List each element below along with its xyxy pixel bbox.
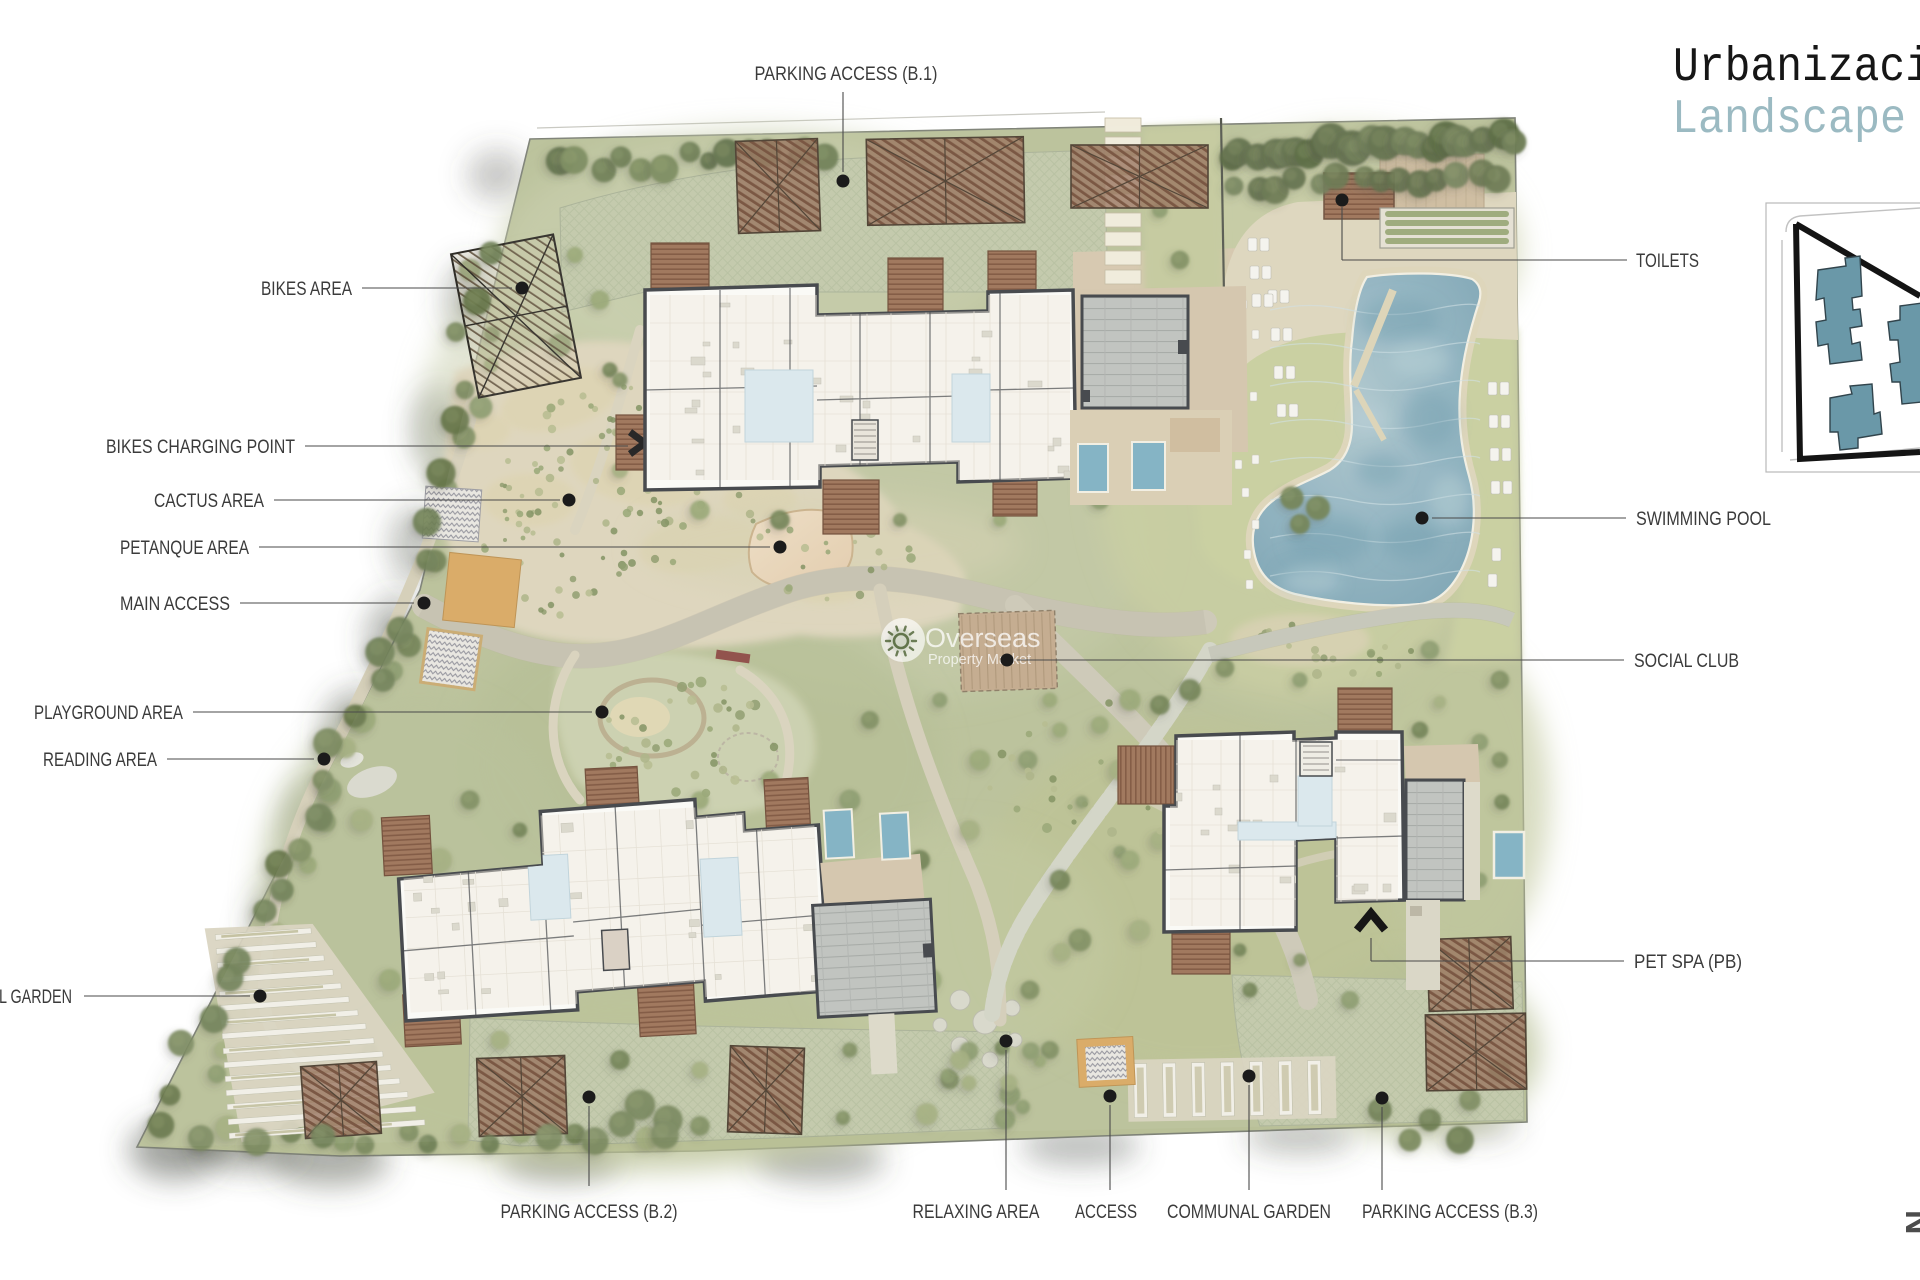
svg-text:BIKES CHARGING POINT: BIKES CHARGING POINT (106, 437, 295, 458)
svg-text:COMMUNAL GARDEN: COMMUNAL GARDEN (1167, 1202, 1331, 1223)
svg-text:PARKING ACCESS (B.2): PARKING ACCESS (B.2) (501, 1202, 678, 1223)
svg-text:Overseas: Overseas (925, 623, 1041, 653)
svg-text:ACCESS: ACCESS (1075, 1202, 1137, 1223)
svg-text:SWIMMING POOL: SWIMMING POOL (1636, 509, 1771, 530)
svg-text:Urbanizaci: Urbanizaci (1673, 41, 1920, 95)
svg-text:Landscape: Landscape (1672, 93, 1906, 147)
svg-text:BIKES AREA: BIKES AREA (261, 279, 352, 300)
svg-text:READING AREA: READING AREA (43, 750, 157, 771)
svg-text:PARKING ACCESS (B.1): PARKING ACCESS (B.1) (755, 64, 938, 85)
svg-text:Property Market: Property Market (928, 652, 1031, 668)
svg-text:SOCIAL CLUB: SOCIAL CLUB (1634, 651, 1739, 672)
svg-text:PARKING ACCESS (B.3): PARKING ACCESS (B.3) (1362, 1202, 1538, 1223)
svg-text:PETANQUE AREA: PETANQUE AREA (120, 538, 249, 559)
svg-text:VERTICAL GARDEN: VERTICAL GARDEN (0, 987, 72, 1008)
svg-text:MAIN ACCESS: MAIN ACCESS (120, 594, 230, 615)
svg-text:PET SPA (PB): PET SPA (PB) (1634, 952, 1742, 973)
svg-text:RELAXING AREA: RELAXING AREA (913, 1202, 1040, 1223)
svg-text:N: N (1898, 1210, 1920, 1235)
svg-text:PLAYGROUND AREA: PLAYGROUND AREA (34, 703, 183, 724)
svg-text:CACTUS AREA: CACTUS AREA (154, 491, 264, 512)
svg-text:TOILETS: TOILETS (1636, 251, 1699, 272)
